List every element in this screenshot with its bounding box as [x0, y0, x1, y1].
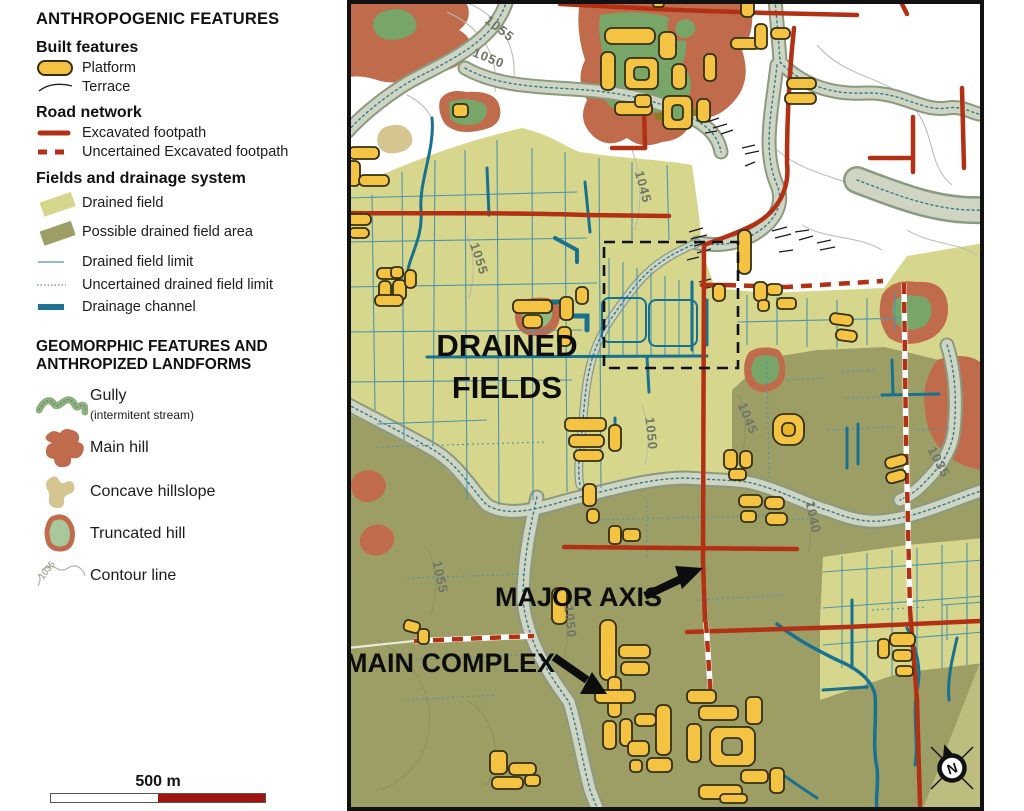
thick-teal-line-icon	[36, 301, 82, 313]
legend-label: Gully	[90, 387, 126, 404]
main-hill-blob-icon	[36, 426, 90, 470]
legend-label: Drained field	[82, 194, 163, 212]
legend-item-drained-field: Drained field	[36, 190, 340, 218]
legend-label: Drainage channel	[82, 298, 196, 316]
possible-drained-field-swatch-icon	[36, 219, 82, 247]
legend-heading-fields-drainage: Fields and drainage system	[36, 170, 340, 188]
map-canvas: 1055 1050 1045 1055 1050 1045 1055 1050 …	[347, 0, 984, 811]
scale-bar: 500 m	[50, 773, 266, 803]
legend-item-main-hill: Main hill	[36, 426, 340, 470]
legend-item-terrace: Terrace	[36, 78, 340, 96]
major-axis-label: MAJOR AXIS	[495, 582, 662, 612]
geomorphic-title-line2: ANTHROPIZED LANDFORMS	[36, 356, 251, 373]
solid-red-line-icon	[36, 127, 82, 139]
legend-item-concave-hillslope: Concave hillslope	[36, 472, 340, 512]
legend-label: Drained field limit	[82, 253, 193, 271]
legend-label: Uncertained Excavated footpath	[82, 143, 288, 161]
legend-label: Contour line	[90, 566, 176, 586]
scale-bar-red-half	[158, 794, 265, 802]
legend-item-contour-line: 1035 Contour line	[36, 556, 340, 596]
dashed-red-line-icon	[36, 146, 82, 158]
terrace-marks	[687, 118, 835, 289]
legend-title-geomorphic: GEOMORPHIC FEATURES AND ANTHROPIZED LAND…	[36, 338, 340, 375]
geomorphic-title-line1: GEOMORPHIC FEATURES AND	[36, 338, 268, 355]
legend-label: Main hill	[90, 438, 149, 458]
main-hill	[347, 0, 471, 82]
legend-item-drainage-channel: Drainage channel	[36, 298, 340, 316]
main-complex-label: MAIN COMPLEX	[347, 648, 555, 678]
concave-hillslope-blob-icon	[36, 472, 90, 512]
map-panel: 1055 1050 1045 1055 1050 1045 1055 1050 …	[347, 0, 984, 811]
legend-item-truncated-hill: Truncated hill	[36, 514, 340, 554]
drained-field-swatch-icon	[36, 190, 82, 218]
drained-fields-label-line1: DRAINED	[436, 328, 577, 363]
legend-item-gully: Gully (intermitent stream)	[36, 386, 340, 424]
scale-bar-label: 500 m	[50, 773, 266, 791]
contour-sample-value: 1035	[37, 560, 57, 582]
drained-fields-label-line2: FIELDS	[452, 370, 562, 405]
scale-bar-white-half	[51, 794, 158, 802]
legend-heading-road-network: Road network	[36, 104, 340, 122]
legend-title-anthropogenic: ANTHROPOGENIC FEATURES	[36, 10, 340, 29]
figure-page: ANTHROPOGENIC FEATURES Built features Pl…	[0, 0, 1024, 811]
legend-label: Excavated footpath	[82, 124, 206, 142]
legend-item-uncertained-footpath: Uncertained Excavated footpath	[36, 143, 340, 161]
truncated-hill-blob-icon	[36, 514, 90, 554]
legend-label: Platform	[82, 59, 136, 77]
dotted-blue-line-icon	[36, 280, 82, 290]
legend-item-platform: Platform	[36, 59, 340, 77]
legend-item-uncertained-limit: Uncertained drained field limit	[36, 276, 340, 294]
contour-line-sample-icon: 1035	[36, 556, 90, 596]
thin-blue-line-icon	[36, 257, 82, 267]
legend-item-excavated-footpath: Excavated footpath	[36, 124, 340, 142]
platform-swatch-icon	[36, 59, 82, 77]
legend-heading-built-features: Built features	[36, 39, 340, 57]
legend-item-drained-field-limit: Drained field limit	[36, 253, 340, 271]
legend-label: Possible drained field area	[82, 223, 253, 241]
legend-label: Uncertained drained field limit	[82, 276, 273, 294]
legend-sublabel: (intermitent stream)	[90, 408, 194, 422]
terrace-line-icon	[36, 79, 82, 95]
legend-label: Truncated hill	[90, 524, 185, 544]
legend-label: Terrace	[82, 78, 130, 96]
gully-squiggle-icon	[36, 388, 90, 422]
legend-label: Concave hillslope	[90, 482, 215, 502]
scale-bar-graphic	[50, 793, 266, 803]
legend-panel: ANTHROPOGENIC FEATURES Built features Pl…	[36, 6, 340, 598]
legend-item-possible-drained-field: Possible drained field area	[36, 219, 340, 247]
